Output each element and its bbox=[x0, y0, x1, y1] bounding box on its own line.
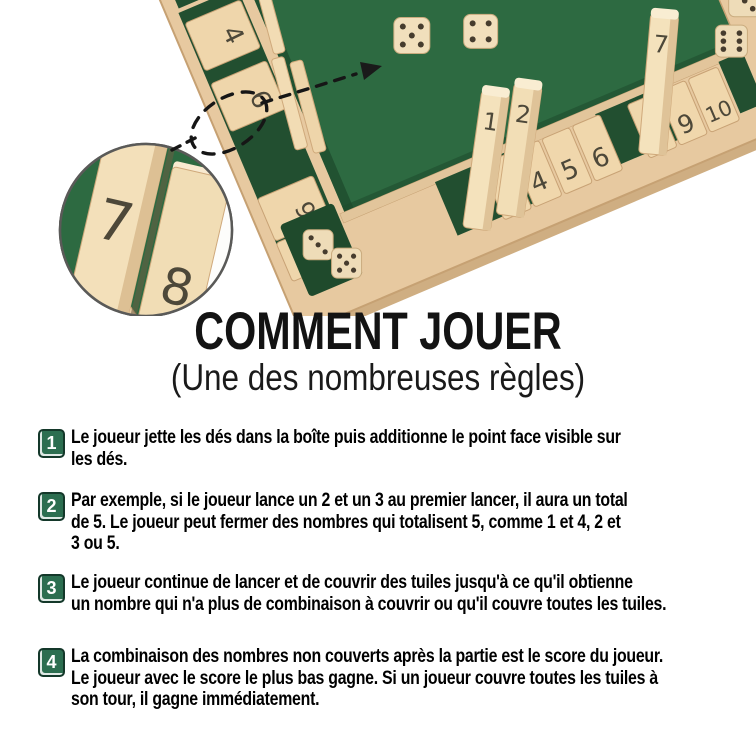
instruction-step-3: 3 Le joueur continue de lancer et de cou… bbox=[38, 572, 756, 615]
page-subtitle: (Une des nombreuses règles) bbox=[57, 357, 700, 399]
step-number-badge: 2 bbox=[38, 492, 65, 521]
tile-number: 7 bbox=[652, 30, 670, 59]
step-line: les dés. bbox=[71, 449, 621, 471]
step-line: un nombre qui n'a plus de combinaison à … bbox=[71, 594, 666, 616]
die-icon bbox=[303, 230, 333, 260]
step-text: La combinaison des nombres non couverts … bbox=[71, 646, 663, 711]
step-line: son tour, il gagne immédiatement. bbox=[71, 689, 663, 711]
step-line: Le joueur avec le score le plus bas gagn… bbox=[71, 668, 663, 690]
step-text: Le joueur jette les dés dans la boîte pu… bbox=[71, 427, 621, 470]
product-photo: 4 6 9 10 3 4 5 6 8 9 10 bbox=[0, 0, 756, 316]
step-number-badge: 4 bbox=[38, 648, 65, 677]
step-number-badge: 1 bbox=[38, 429, 65, 458]
step-line: Le joueur jette les dés dans la boîte pu… bbox=[71, 427, 621, 449]
die-icon bbox=[464, 14, 498, 48]
step-text: Par exemple, si le joueur lance un 2 et … bbox=[71, 490, 628, 555]
step-line: Le joueur continue de lancer et de couvr… bbox=[71, 572, 666, 594]
shut-the-box-photo: 4 6 9 10 3 4 5 6 8 9 10 bbox=[0, 0, 756, 316]
die-icon bbox=[715, 25, 747, 57]
step-line: 3 ou 5. bbox=[71, 533, 628, 555]
die-icon bbox=[394, 18, 430, 54]
page-title: COMMENT JOUER bbox=[83, 304, 673, 360]
step-line: La combinaison des nombres non couverts … bbox=[71, 646, 663, 668]
step-number-badge: 3 bbox=[38, 574, 65, 603]
die-icon bbox=[729, 0, 756, 17]
step-line: Par exemple, si le joueur lance un 2 et … bbox=[71, 490, 628, 512]
instruction-step-4: 4 La combinaison des nombres non couvert… bbox=[38, 646, 756, 711]
step-text: Le joueur continue de lancer et de couvr… bbox=[71, 572, 666, 615]
instruction-step-1: 1 Le joueur jette les dés dans la boîte … bbox=[38, 427, 729, 470]
step-line: de 5. Le joueur peut fermer des nombres … bbox=[71, 512, 628, 534]
die-icon bbox=[332, 248, 362, 278]
instruction-step-2: 2 Par exemple, si le joueur lance un 2 e… bbox=[38, 490, 738, 555]
